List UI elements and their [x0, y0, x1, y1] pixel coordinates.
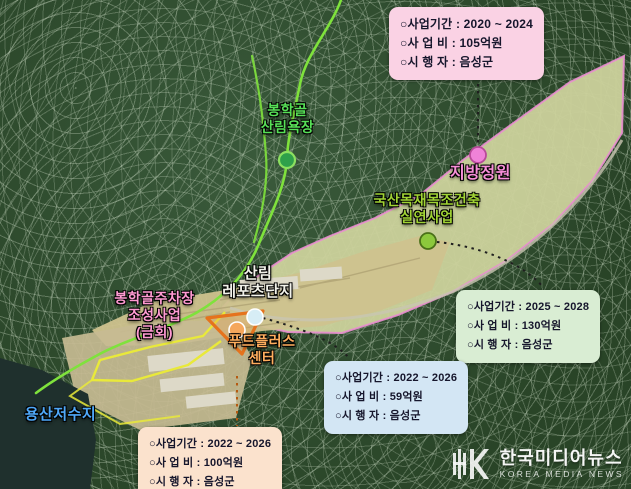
- forest-bath-marker: [279, 152, 295, 168]
- label-reservoir-line1: 용산저수지: [8, 406, 113, 424]
- label-provincial-garden-line1: 지방정원: [428, 164, 533, 184]
- info-box-timber: ○사업기간 : 2025 ~ 2028 ○사 업 비 : 130억원 ○시 행 …: [456, 290, 600, 363]
- label-forest-bath: 봉학골 산림욕장: [235, 102, 340, 136]
- label-foodplus-line1: 푸드플러스: [212, 333, 312, 350]
- timber-budget: ○사 업 비 : 130억원: [467, 317, 589, 336]
- label-leports-line1: 산림: [203, 265, 313, 283]
- garden-budget: ○사 업 비 : 105억원: [400, 34, 533, 53]
- label-provincial-garden: 지방정원: [428, 164, 533, 184]
- leports-budget: ○사 업 비 : 59억원: [335, 388, 457, 407]
- label-timber-project: 국산목재목조건축 실연사업: [352, 192, 502, 226]
- leports-period: ○사업기간 : 2022 ~ 2026: [335, 369, 457, 388]
- watermark-subtitle: KOREA MEDIA NEWS: [500, 470, 624, 479]
- news-watermark: 한국미디어뉴스 KOREA MEDIA NEWS: [453, 447, 624, 481]
- timber-agency: ○시 행 자 : 음성군: [467, 336, 589, 355]
- label-timber-line1: 국산목재목조건축: [352, 192, 502, 209]
- leports-agency: ○시 행 자 : 음성군: [335, 407, 457, 426]
- label-forest-bath-line2: 산림욕장: [235, 119, 340, 136]
- label-parking-project: 봉학골주차장 조성사업 (금회): [92, 290, 217, 341]
- label-parking-line1: 봉학골주차장: [92, 290, 217, 307]
- label-leports-line2: 레포츠단지: [203, 283, 313, 301]
- label-reservoir: 용산저수지: [8, 406, 113, 424]
- garden-agency: ○시 행 자 : 음성군: [400, 53, 533, 72]
- info-box-leports: ○사업기간 : 2022 ~ 2026 ○사 업 비 : 59억원 ○시 행 자…: [324, 361, 468, 434]
- hk-logo-icon: [453, 447, 491, 481]
- foodplus-period: ○사업기간 : 2022 ~ 2026: [149, 435, 271, 454]
- timber-project-marker: [420, 233, 436, 249]
- foodplus-agency: ○시 행 자 : 음성군: [149, 473, 271, 489]
- hiking-trail-branch: [252, 56, 266, 242]
- label-foodplus: 푸드플러스 센터: [212, 333, 312, 367]
- info-box-garden: ○사업기간 : 2020 ~ 2024 ○사 업 비 : 105억원 ○시 행 …: [389, 7, 544, 80]
- timber-period: ○사업기간 : 2025 ~ 2028: [467, 298, 589, 317]
- label-parking-line3: (금회): [92, 324, 217, 341]
- provincial-garden-marker: [470, 147, 486, 163]
- news-map-image: 봉학골 산림욕장 지방정원 국산목재목조건축 실연사업 산림 레포츠단지 봉학골…: [0, 0, 631, 489]
- label-forest-bath-line1: 봉학골: [235, 102, 340, 119]
- info-box-foodplus: ○사업기간 : 2022 ~ 2026 ○사 업 비 : 100억원 ○시 행 …: [138, 427, 282, 489]
- watermark-title: 한국미디어뉴스: [500, 449, 624, 468]
- label-timber-line2: 실연사업: [352, 209, 502, 226]
- label-parking-line2: 조성사업: [92, 307, 217, 324]
- label-leports: 산림 레포츠단지: [203, 265, 313, 302]
- garden-period: ○사업기간 : 2020 ~ 2024: [400, 15, 533, 34]
- label-foodplus-line2: 센터: [212, 350, 312, 367]
- leports-marker: [247, 309, 263, 325]
- foodplus-budget: ○사 업 비 : 100억원: [149, 454, 271, 473]
